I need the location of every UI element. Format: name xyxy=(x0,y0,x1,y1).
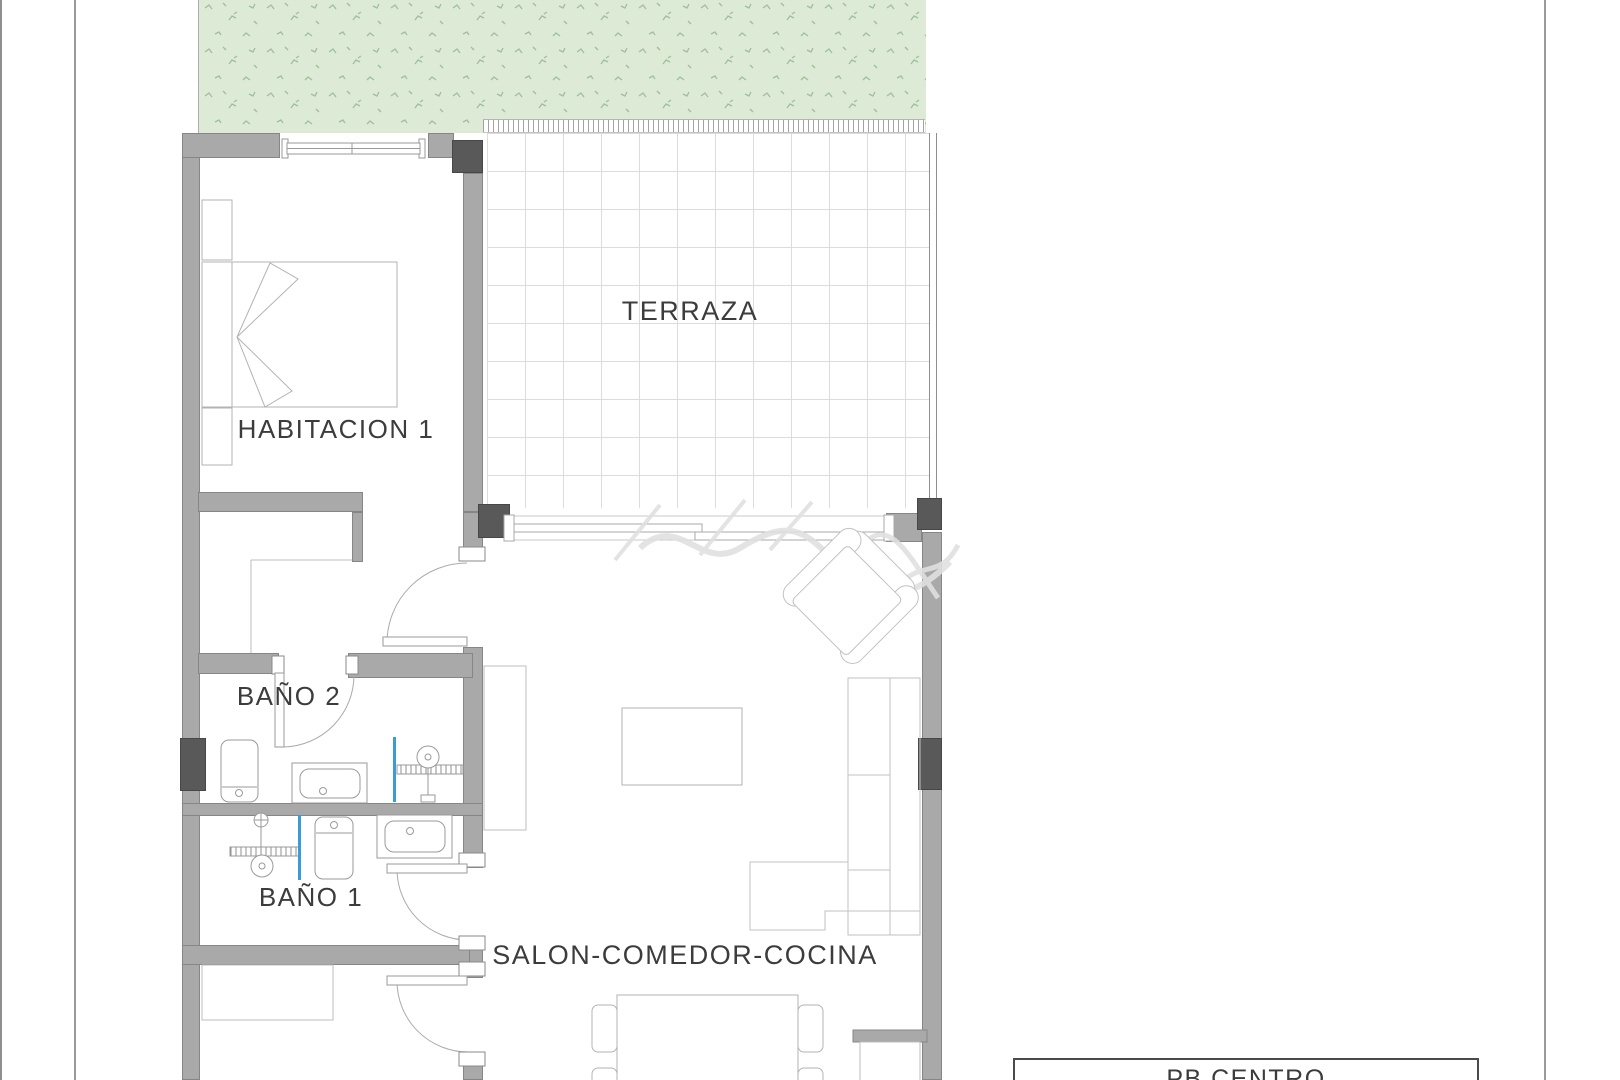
coffee-table-icon xyxy=(622,708,742,785)
pillar-terrace-se xyxy=(917,498,942,530)
terrace-railing xyxy=(929,133,937,500)
toilet-icon xyxy=(315,817,353,879)
title-block: PB CENTRO xyxy=(1013,1058,1479,1080)
terrace-edge-hatch xyxy=(483,119,925,133)
nightstand-icon xyxy=(202,200,232,465)
wall-bedroom-top-left xyxy=(182,133,280,158)
shower-icon xyxy=(397,746,463,802)
wall-bath-divider xyxy=(182,803,483,816)
wall-corridor-stub xyxy=(352,512,363,562)
wall-bath2-top-left xyxy=(198,653,279,674)
wall-right-exterior xyxy=(922,532,942,1080)
sheet-border-line-left xyxy=(0,0,2,1080)
wall-bath1-bottom xyxy=(182,945,470,965)
title-block-label: PB CENTRO xyxy=(1166,1065,1325,1080)
window-icon xyxy=(282,139,425,158)
chair-icon xyxy=(798,1068,823,1080)
toilet-icon xyxy=(221,740,258,802)
wall-spine-mid xyxy=(463,647,483,868)
pillar-bedroom-terrace xyxy=(452,140,483,173)
armchair-icon xyxy=(778,521,926,669)
wall-bedroom-top-right xyxy=(428,133,454,158)
pillar-terrace-sw xyxy=(478,504,510,538)
wall-bath2-top-right xyxy=(348,653,473,678)
room-label-bano2: BAÑO 2 xyxy=(237,681,341,712)
sheet-guide-line-left xyxy=(74,0,76,1080)
room-label-bano1: BAÑO 1 xyxy=(259,882,363,913)
sink-icon xyxy=(292,763,367,803)
pillar-right-wall xyxy=(918,738,942,790)
pillar-left-wall xyxy=(180,738,206,791)
sheet-guide-line-right xyxy=(1544,0,1546,1080)
chair-icon xyxy=(798,1005,823,1052)
garden-area xyxy=(198,0,926,133)
bed-icon xyxy=(202,262,397,407)
wall-spine-bottom xyxy=(463,1056,483,1080)
room-label-terraza: TERRAZA xyxy=(622,296,759,327)
grass-texture-icon xyxy=(199,0,926,133)
chair-icon xyxy=(592,1005,617,1052)
sink-icon xyxy=(377,815,452,858)
wall-corridor-horizontal xyxy=(198,492,363,512)
door-arc-icon xyxy=(383,547,485,646)
room-label-habitacion1: HABITACION 1 xyxy=(238,414,435,445)
wall-bedroom-right xyxy=(463,173,483,512)
kitchen-counter-icon xyxy=(853,1030,927,1080)
chair-icon xyxy=(592,1068,617,1080)
shower-icon xyxy=(230,813,300,877)
kitchen-counter-icon xyxy=(484,666,526,830)
sliding-door-icon xyxy=(504,515,894,541)
dining-table-icon xyxy=(592,995,823,1080)
wall-left-exterior xyxy=(182,133,200,1080)
sofa-icon xyxy=(750,678,920,935)
room-label-salon: SALON-COMEDOR-COCINA xyxy=(492,940,878,971)
floorplan-sheet: TERRAZA HABITACION 1 BAÑO 2 BAÑO 1 SALON… xyxy=(0,0,1620,1080)
